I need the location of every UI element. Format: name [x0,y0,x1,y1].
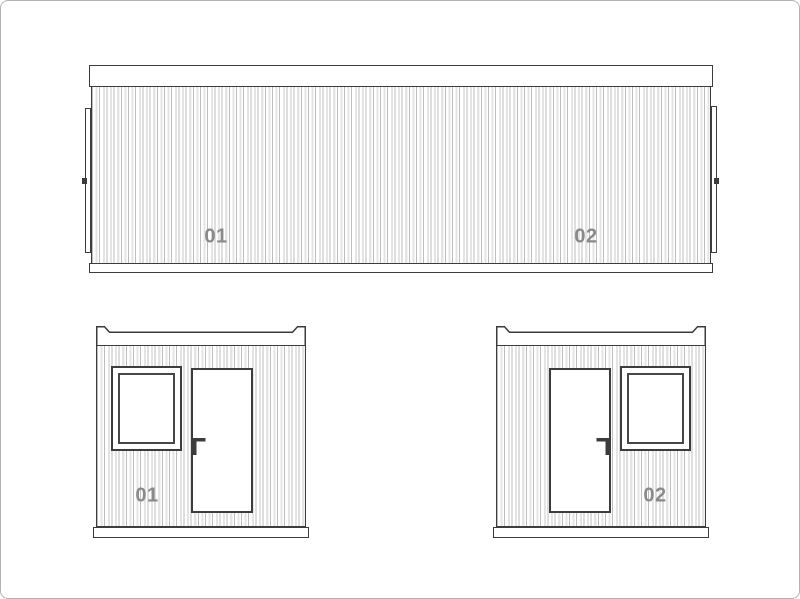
module-01-label: 01 [204,226,227,249]
window-01 [111,366,182,451]
door-02 [549,368,611,513]
end-roof-fascia [496,326,706,346]
drawing-sheet: 01 02 01 [0,0,800,599]
window-02 [620,366,691,451]
end-roof-fascia [96,326,306,346]
door-01 [191,368,253,513]
side-elevation-base-rail [89,263,713,273]
door-handle-right-icon [714,178,719,184]
module-01-end-label: 01 [135,485,158,508]
end-elevation-01: 01 [93,326,309,539]
side-elevation-wall-cladding [91,86,711,264]
window-02-glass [627,373,684,444]
door-handle-left-icon [82,178,87,184]
end-elevation-02: 02 [493,326,709,539]
window-01-glass [118,373,175,444]
module-02-label: 02 [574,226,597,249]
end-base-frame [93,527,309,538]
module-02-end-label: 02 [643,485,666,508]
side-elevation-roof-fascia [89,65,713,87]
end-base-frame [493,527,709,538]
door-01-handle-icon [193,438,206,455]
side-elevation: 01 02 [85,65,717,273]
door-02-handle-icon [596,438,609,455]
